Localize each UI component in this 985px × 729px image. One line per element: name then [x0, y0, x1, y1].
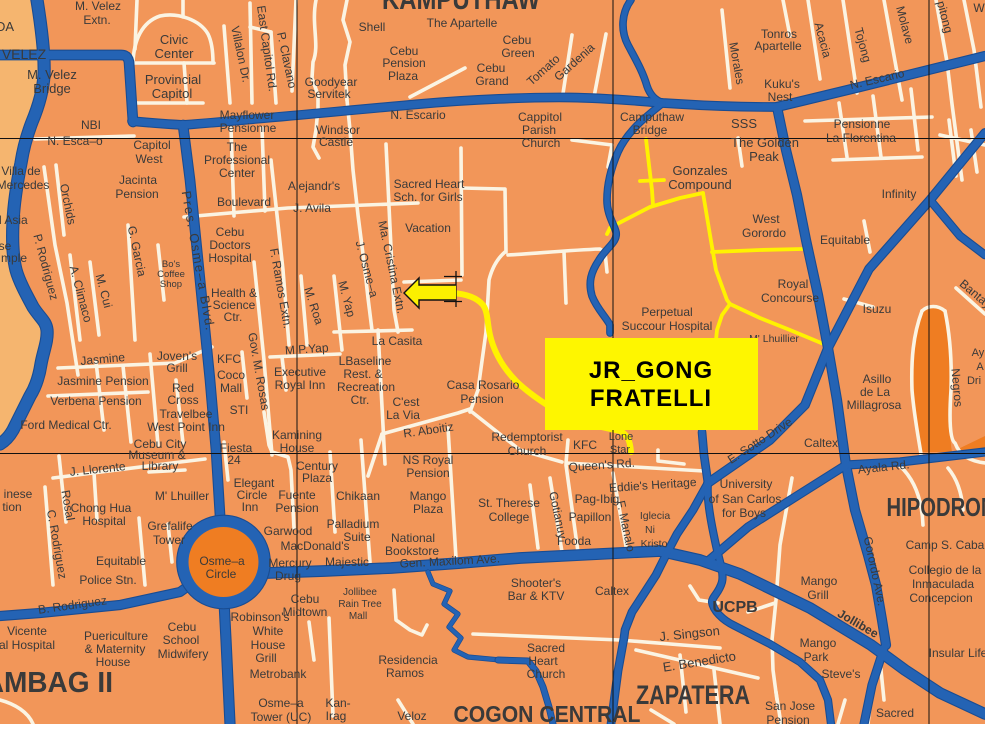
svg-text:The: The: [227, 140, 248, 154]
svg-text:Provincial: Provincial: [145, 72, 201, 87]
svg-text:KFC: KFC: [573, 438, 597, 452]
svg-text:Cebu: Cebu: [291, 592, 320, 606]
svg-text:La Florentina: La Florentina: [826, 131, 896, 145]
svg-text:Pag-Ibig: Pag-Ibig: [575, 492, 620, 506]
svg-text:Mayflower: Mayflower: [220, 108, 275, 122]
svg-text:Cross: Cross: [167, 393, 198, 407]
svg-text:Castle: Castle: [319, 135, 353, 149]
svg-text:de La: de La: [860, 385, 890, 399]
svg-text:FRATELLI: FRATELLI: [590, 385, 712, 412]
svg-text:Compound: Compound: [668, 177, 732, 192]
svg-text:House: House: [251, 638, 286, 652]
svg-text:NBI: NBI: [81, 118, 101, 132]
svg-text:Cappitol: Cappitol: [518, 110, 562, 124]
svg-text:National: National: [391, 531, 435, 545]
svg-text:Circle: Circle: [206, 567, 237, 581]
svg-text:J. Avila: J. Avila: [293, 201, 331, 215]
svg-text:West Point Inn: West Point Inn: [147, 420, 225, 434]
svg-text:Grand: Grand: [475, 74, 508, 88]
svg-text:Fuente: Fuente: [278, 488, 316, 502]
svg-text:Sacred: Sacred: [876, 706, 914, 720]
svg-text:Heart: Heart: [528, 654, 558, 668]
svg-text:mple: mple: [1, 251, 27, 265]
svg-text:Ay: Ay: [972, 347, 985, 359]
svg-text:Boulevard: Boulevard: [217, 195, 271, 209]
svg-text:Robinson's: Robinson's: [231, 610, 290, 624]
svg-text:STI: STI: [230, 403, 249, 417]
svg-text:UCPB: UCPB: [712, 599, 757, 616]
svg-text:Casa Rosario: Casa Rosario: [447, 378, 520, 392]
svg-text:Perpetual: Perpetual: [641, 305, 692, 319]
svg-text:Steve's: Steve's: [822, 667, 861, 681]
svg-text:Center: Center: [219, 166, 255, 180]
svg-text:Hospital: Hospital: [208, 251, 251, 265]
svg-text:Hospital: Hospital: [82, 514, 125, 528]
svg-text:Travelbee: Travelbee: [160, 407, 213, 421]
svg-text:Caltex: Caltex: [595, 584, 629, 598]
svg-text:Concepcion: Concepcion: [909, 591, 972, 605]
svg-text:M. Velez: M. Velez: [27, 67, 77, 82]
svg-text:tion: tion: [2, 500, 21, 514]
svg-text:Jasmine Pension: Jasmine Pension: [57, 374, 148, 388]
svg-text:La Via: La Via: [386, 408, 420, 422]
svg-text:Star: Star: [610, 444, 631, 456]
svg-text:Park: Park: [804, 650, 830, 664]
svg-text:Majestic: Majestic: [325, 555, 369, 569]
svg-text:Camp S. Caba: Camp S. Caba: [906, 538, 985, 552]
svg-text:NS Royal: NS Royal: [403, 453, 454, 467]
svg-text:Grill: Grill: [807, 588, 828, 602]
svg-text:Mango: Mango: [801, 574, 838, 588]
svg-text:Pension: Pension: [460, 392, 503, 406]
svg-text:Palladium: Palladium: [327, 517, 380, 531]
svg-text:Ramos: Ramos: [386, 666, 424, 680]
svg-text:Shooter's: Shooter's: [511, 576, 561, 590]
svg-text:Capitol: Capitol: [133, 138, 170, 152]
svg-text:Shop: Shop: [160, 279, 182, 290]
svg-text:Royal: Royal: [778, 277, 809, 291]
svg-text:KAMPUTHAW: KAMPUTHAW: [382, 0, 541, 16]
svg-text:Osme–a: Osme–a: [258, 696, 304, 710]
svg-text:al Hospital: al Hospital: [0, 638, 55, 652]
svg-text:Church: Church: [508, 444, 547, 458]
svg-text:Center: Center: [154, 46, 194, 61]
svg-text:Sacred: Sacred: [527, 641, 565, 655]
svg-text:Caltex: Caltex: [804, 436, 838, 450]
svg-text:W: W: [973, 1, 985, 15]
svg-text:ZAPATERA: ZAPATERA: [636, 680, 750, 710]
svg-text:Osme–a: Osme–a: [199, 554, 245, 568]
svg-text:Tower (UC): Tower (UC): [251, 710, 312, 724]
svg-text:Alejandr's: Alejandr's: [288, 179, 340, 193]
svg-text:Infinity: Infinity: [882, 187, 917, 201]
svg-text:Camputhaw: Camputhaw: [620, 110, 684, 124]
svg-text:Kuku's: Kuku's: [764, 77, 800, 91]
svg-text:Puericulture: Puericulture: [84, 629, 148, 643]
svg-text:Cebu: Cebu: [503, 33, 532, 47]
svg-text:Vacation: Vacation: [405, 221, 451, 235]
svg-text:Peak: Peak: [749, 149, 779, 164]
svg-text:Collegio de la: Collegio de la: [909, 563, 982, 577]
svg-text:Police Stn.: Police Stn.: [79, 573, 136, 587]
svg-text:Redemptorist: Redemptorist: [491, 430, 563, 444]
svg-text:MacDonald's: MacDonald's: [281, 539, 350, 553]
svg-text:Millagrosa: Millagrosa: [847, 398, 902, 412]
svg-text:Ni: Ni: [645, 524, 655, 536]
svg-text:M' Lhuiller: M' Lhuiller: [155, 489, 209, 503]
svg-text:24: 24: [227, 453, 241, 467]
svg-text:Lone: Lone: [609, 431, 633, 443]
svg-text:Coco: Coco: [217, 368, 245, 382]
svg-text:House: House: [280, 441, 315, 455]
svg-text:SAMBAG II: SAMBAG II: [0, 667, 113, 699]
svg-text:N. Escario: N. Escario: [390, 108, 446, 122]
svg-text:Kamining: Kamining: [272, 428, 322, 442]
svg-text:Church: Church: [522, 136, 561, 150]
svg-text:Rain Tree: Rain Tree: [338, 599, 382, 610]
svg-text:Residencia: Residencia: [378, 653, 438, 667]
svg-text:Church: Church: [527, 667, 566, 681]
svg-text:Civic: Civic: [160, 32, 189, 47]
svg-text:Chikaan: Chikaan: [336, 489, 380, 503]
svg-text:Concourse: Concourse: [761, 291, 819, 305]
svg-text:Sch. for Girls: Sch. for Girls: [393, 190, 462, 204]
svg-text:& Maternity: & Maternity: [85, 642, 146, 656]
svg-text:Dri: Dri: [967, 375, 981, 387]
svg-text:Drug: Drug: [275, 569, 301, 583]
svg-text:Nest: Nest: [768, 90, 793, 104]
svg-text:Chong Hua: Chong Hua: [71, 501, 132, 515]
svg-text:St. Therese: St. Therese: [478, 496, 540, 510]
svg-text:HIPODROMO: HIPODROMO: [887, 492, 985, 522]
svg-text:Apartelle: Apartelle: [754, 39, 802, 53]
svg-text:Gorordo: Gorordo: [742, 226, 786, 240]
svg-text:West: West: [752, 212, 780, 226]
svg-text:University: University: [720, 477, 773, 491]
svg-text:Iglecia: Iglecia: [640, 510, 671, 522]
svg-text:Irag: Irag: [326, 709, 347, 723]
svg-text:Pensionne: Pensionne: [220, 121, 277, 135]
svg-text:Bar & KTV: Bar & KTV: [508, 589, 565, 603]
svg-text:Servitek: Servitek: [307, 87, 351, 101]
svg-text:La Casita: La Casita: [372, 334, 423, 348]
svg-text:Library: Library: [142, 459, 179, 473]
svg-text:Doctors: Doctors: [209, 238, 250, 252]
svg-text:A: A: [976, 361, 984, 373]
svg-text:Recreation: Recreation: [337, 380, 395, 394]
svg-text:Pensionne: Pensionne: [834, 117, 891, 131]
svg-text:Green: Green: [501, 46, 534, 60]
svg-text:M. Velez: M. Velez: [75, 0, 121, 13]
svg-text:LBaseline: LBaseline: [339, 354, 392, 368]
svg-text:Metrobank: Metrobank: [250, 667, 308, 681]
svg-text:Gonzales: Gonzales: [673, 163, 728, 178]
svg-text:Insular Life: Insular Life: [929, 646, 985, 660]
svg-text:Ctr.: Ctr.: [224, 310, 243, 324]
svg-text:Tower: Tower: [153, 533, 185, 547]
svg-text:West: West: [135, 152, 163, 166]
svg-text:Equitable: Equitable: [96, 554, 146, 568]
svg-text:VELEZ: VELEZ: [2, 46, 47, 62]
svg-text:Pension: Pension: [115, 187, 158, 201]
svg-text:Suite: Suite: [343, 530, 371, 544]
svg-text:KFC: KFC: [217, 352, 241, 366]
svg-text:Mercedes: Mercedes: [0, 178, 49, 192]
svg-text:College: College: [489, 510, 530, 524]
svg-text:Professional: Professional: [204, 153, 270, 167]
svg-text:Bridge: Bridge: [633, 123, 668, 137]
svg-text:Sacred Heart: Sacred Heart: [394, 177, 465, 191]
svg-text:Rest. &: Rest. &: [343, 367, 382, 381]
svg-text:Kristo: Kristo: [641, 538, 668, 550]
svg-text:Plaza: Plaza: [388, 69, 418, 83]
svg-text:Grill: Grill: [255, 651, 276, 665]
svg-text:of San Carlos: of San Carlos: [709, 492, 782, 506]
svg-text:Pension: Pension: [406, 466, 449, 480]
svg-text:Ctr.: Ctr.: [351, 393, 370, 407]
svg-text:Vicente: Vicente: [7, 624, 47, 638]
svg-text:Grefalife: Grefalife: [147, 519, 193, 533]
svg-text:JR_GONG: JR_GONG: [589, 357, 713, 384]
svg-text:Parish: Parish: [522, 123, 556, 137]
svg-text:Jollibee: Jollibee: [343, 587, 377, 598]
svg-text:Plaza: Plaza: [413, 502, 443, 516]
svg-text:Kan-: Kan-: [325, 696, 350, 710]
svg-text:Mango: Mango: [800, 636, 837, 650]
svg-text:Cebu: Cebu: [216, 225, 245, 239]
svg-text:Midwifery: Midwifery: [158, 647, 209, 661]
svg-text:Executive: Executive: [274, 365, 326, 379]
svg-text:Pension: Pension: [275, 501, 318, 515]
svg-text:inese: inese: [4, 487, 33, 501]
svg-text:Papillon: Papillon: [569, 510, 612, 524]
svg-text:Isuzu: Isuzu: [863, 302, 892, 316]
svg-text:Pension: Pension: [382, 56, 425, 70]
svg-text:Mango: Mango: [410, 489, 447, 503]
svg-text:Succour Hospital: Succour Hospital: [622, 319, 713, 333]
svg-text:Mercury: Mercury: [268, 556, 311, 570]
svg-text:C'est: C'est: [393, 395, 421, 409]
svg-text:Asillo: Asillo: [863, 372, 892, 386]
svg-text:The Apartelle: The Apartelle: [427, 16, 498, 30]
svg-text:DA: DA: [0, 19, 14, 34]
svg-text:Extn.: Extn.: [83, 13, 110, 27]
svg-text:Pension: Pension: [766, 713, 809, 724]
svg-text:Verbena Pension: Verbena Pension: [50, 394, 141, 408]
svg-text:Inmaculada: Inmaculada: [912, 577, 974, 591]
svg-text:SSS: SSS: [731, 116, 757, 131]
svg-text:Veloz: Veloz: [397, 709, 426, 723]
svg-text:Cebu: Cebu: [477, 61, 506, 75]
svg-text:N. Esca–o: N. Esca–o: [47, 134, 103, 148]
svg-text:COGON CENTRAL: COGON CENTRAL: [454, 701, 641, 724]
svg-text:Jacinta: Jacinta: [119, 173, 157, 187]
svg-text:Royal Inn: Royal Inn: [275, 378, 326, 392]
svg-text:Grill: Grill: [166, 361, 187, 375]
svg-text:White: White: [253, 624, 284, 638]
svg-text:for Boys: for Boys: [722, 506, 766, 520]
svg-text:Capitol: Capitol: [152, 86, 193, 101]
svg-text:Mall: Mall: [220, 381, 242, 395]
svg-text:Villa de: Villa de: [1, 164, 40, 178]
svg-text:The Golden: The Golden: [731, 135, 799, 150]
svg-text:Equitable: Equitable: [820, 233, 870, 247]
svg-text:Inn: Inn: [242, 500, 259, 514]
svg-text:Ford Medical Ctr.: Ford Medical Ctr.: [20, 418, 111, 432]
svg-text:Mall: Mall: [349, 611, 367, 622]
svg-text:Cebu: Cebu: [168, 620, 197, 634]
svg-text:School: School: [163, 633, 200, 647]
svg-text:San Jose: San Jose: [765, 699, 815, 713]
svg-text:Garwood: Garwood: [264, 524, 313, 538]
svg-text:Bridge: Bridge: [33, 81, 71, 96]
svg-text:Shell: Shell: [359, 20, 386, 34]
svg-text:Plaza: Plaza: [302, 471, 332, 485]
svg-text:el Asia: el Asia: [0, 213, 28, 227]
